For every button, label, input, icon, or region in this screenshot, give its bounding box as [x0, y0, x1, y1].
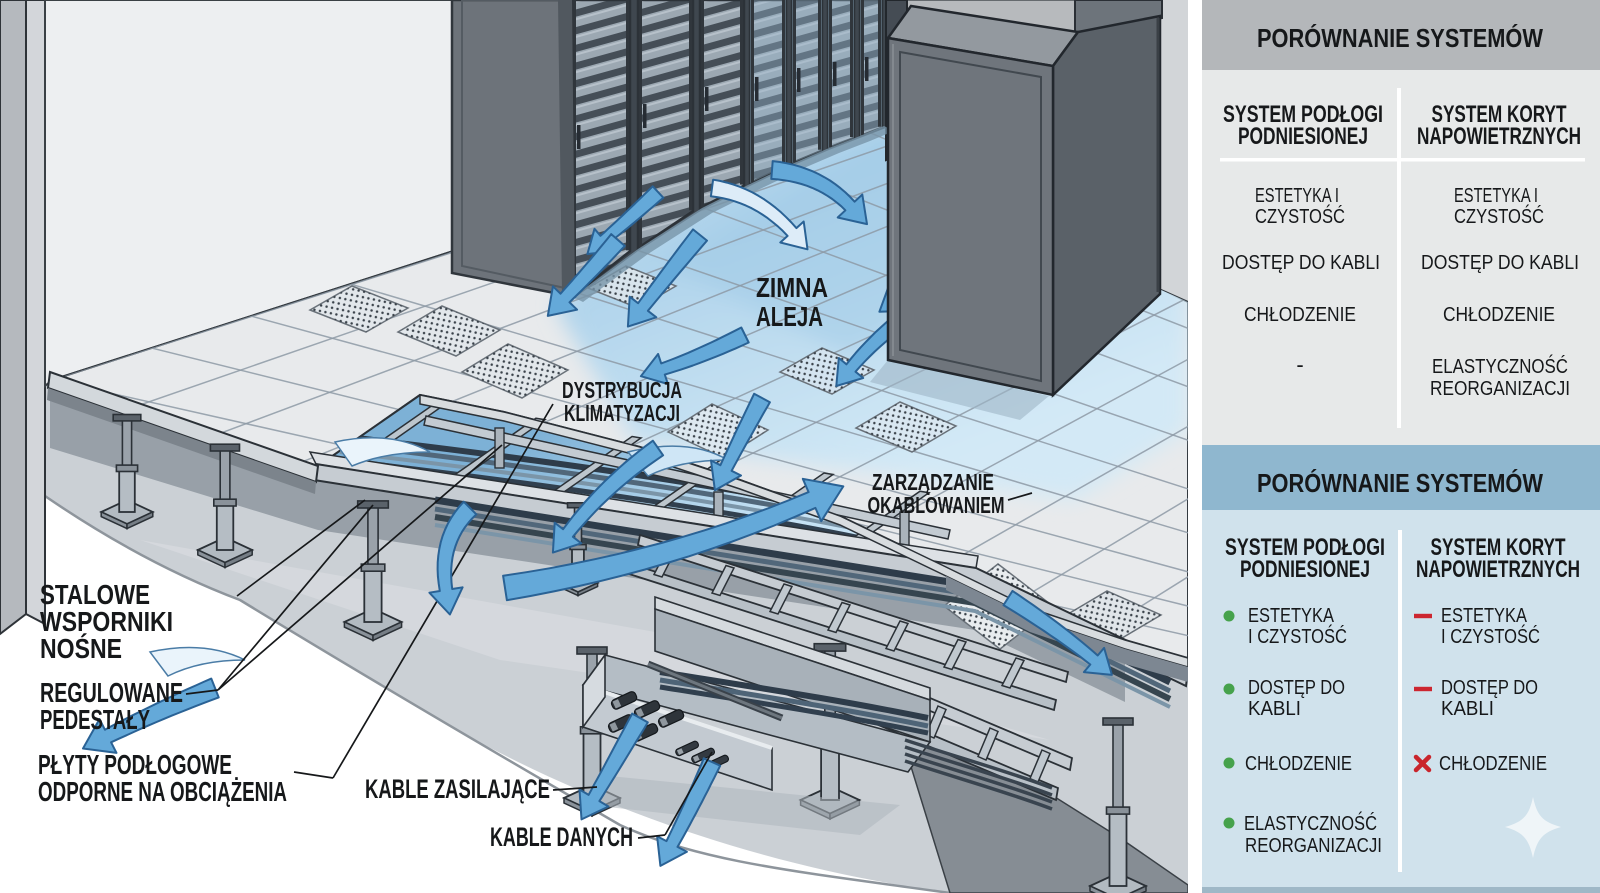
svg-text:REORGANIZACJI: REORGANIZACJI: [1430, 378, 1570, 400]
svg-text:NAPOWIETRZNYCH: NAPOWIETRZNYCH: [1417, 123, 1581, 150]
svg-text:ODPORNE NA OBCIĄŻENIA: ODPORNE NA OBCIĄŻENIA: [38, 776, 287, 807]
svg-text:DOSTĘP DO KABLI: DOSTĘP DO KABLI: [1421, 252, 1579, 274]
svg-text:CHŁODZENIE: CHŁODZENIE: [1244, 304, 1356, 326]
svg-text:CHŁODZENIE: CHŁODZENIE: [1443, 304, 1555, 326]
svg-text:KABLI: KABLI: [1248, 698, 1301, 720]
svg-text:-: -: [1296, 352, 1303, 377]
svg-text:ESTETYKA: ESTETYKA: [1441, 605, 1528, 627]
svg-text:ESTETYKA: ESTETYKA: [1248, 605, 1335, 627]
svg-text:CHŁODZENIE: CHŁODZENIE: [1245, 753, 1352, 775]
svg-text:KABLE DANYCH: KABLE DANYCH: [490, 822, 633, 852]
svg-text:REORGANIZACJI: REORGANIZACJI: [1245, 835, 1382, 857]
svg-text:NAPOWIETRZNYCH: NAPOWIETRZNYCH: [1416, 556, 1580, 583]
svg-text:DOSTĘP DO: DOSTĘP DO: [1441, 677, 1538, 699]
svg-text:PODNIESIONEJ: PODNIESIONEJ: [1238, 123, 1368, 150]
svg-text:KABLI: KABLI: [1441, 698, 1494, 720]
svg-text:ELASTYCZNOŚĆ: ELASTYCZNOŚĆ: [1244, 811, 1377, 835]
svg-text:DOSTĘP DO KABLI: DOSTĘP DO KABLI: [1222, 252, 1380, 274]
svg-text:PORÓWNANIE SYSTEMÓW: PORÓWNANIE SYSTEMÓW: [1257, 23, 1543, 53]
svg-text:CHŁODZENIE: CHŁODZENIE: [1439, 753, 1547, 775]
svg-text:ALEJA: ALEJA: [756, 301, 823, 332]
svg-text:ESTETYKA I: ESTETYKA I: [1454, 185, 1538, 207]
svg-text:KABLE ZASILAJĄCE: KABLE ZASILAJĄCE: [365, 774, 550, 804]
svg-text:CZYSTOŚĆ: CZYSTOŚĆ: [1255, 204, 1345, 228]
svg-text:OKABLOWANIEM: OKABLOWANIEM: [868, 492, 1005, 518]
svg-text:ELASTYCZNOŚĆ: ELASTYCZNOŚĆ: [1432, 354, 1568, 378]
svg-text:CZYSTOŚĆ: CZYSTOŚĆ: [1454, 204, 1544, 228]
svg-text:ZIMNA: ZIMNA: [756, 272, 828, 303]
svg-text:KLIMATYZACJI: KLIMATYZACJI: [564, 400, 680, 426]
svg-text:I CZYSTOŚĆ: I CZYSTOŚĆ: [1441, 624, 1540, 648]
svg-text:PORÓWNANIE SYSTEMÓW: PORÓWNANIE SYSTEMÓW: [1257, 468, 1543, 498]
svg-text:I CZYSTOŚĆ: I CZYSTOŚĆ: [1248, 624, 1347, 648]
svg-text:PEDESTAŁY: PEDESTAŁY: [40, 704, 150, 735]
svg-text:DOSTĘP DO: DOSTĘP DO: [1248, 677, 1345, 699]
svg-text:NOŚNE: NOŚNE: [40, 633, 122, 664]
svg-text:PODNIESIONEJ: PODNIESIONEJ: [1240, 556, 1370, 583]
svg-text:ESTETYKA I: ESTETYKA I: [1255, 185, 1339, 207]
